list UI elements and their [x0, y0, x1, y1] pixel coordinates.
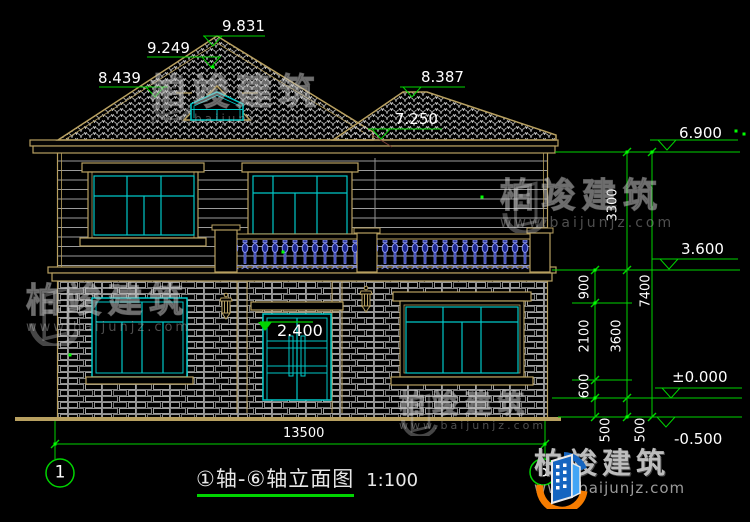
eave-cornice [30, 140, 558, 153]
door-height-label: 2.400 [277, 323, 323, 339]
title-underline [197, 494, 354, 497]
dim-500-b: 500 [635, 418, 648, 443]
ground-line [15, 417, 561, 421]
dim-7400: 7400 [640, 274, 653, 307]
brand-logo: 柏竣建筑 www.baijunjz.com [534, 449, 685, 499]
window-2f-center [242, 163, 358, 234]
window-2f-left [80, 163, 206, 246]
elevation-label-right-ridge: 8.387 [421, 70, 464, 85]
window-1f-right [391, 292, 533, 385]
cad-elevation-screenshot: 9.831 9.249 8.439 8.387 7.250 6.900 3.60… [0, 0, 750, 522]
drawing-title: ①轴-⑥轴立面图 [196, 467, 354, 491]
window-1f-left [86, 298, 193, 384]
dim-3300: 3300 [607, 188, 620, 221]
dim-600: 600 [579, 374, 592, 399]
axis-number-1: 1 [55, 465, 66, 482]
elevation-label-site: -0.500 [674, 432, 722, 447]
drawing-title-row: ①轴-⑥轴立面图1:100 [196, 463, 418, 493]
brand-logo-icon [534, 449, 590, 509]
elevation-label-second-floor: 3.600 [681, 242, 724, 257]
elevation-label-main-eave: 6.900 [679, 126, 722, 141]
entrance-door [251, 302, 343, 400]
dim-500-a: 500 [600, 418, 613, 443]
elevation-label-right-wing-eave: 7.250 [395, 112, 438, 127]
dim-2100: 2100 [579, 319, 592, 352]
elevation-label-ridge: 9.831 [222, 19, 265, 34]
dim-3600: 3600 [611, 319, 624, 352]
elevation-label-ridge-tile: 9.249 [147, 41, 190, 56]
elevation-label-first-floor: ±0.000 [672, 370, 728, 385]
dim-900: 900 [579, 275, 592, 300]
overall-width-dimension: 13500 [283, 427, 324, 440]
right-roof [333, 92, 556, 140]
drawing-scale: 1:100 [366, 470, 418, 491]
elevation-label-left-slope: 8.439 [98, 71, 141, 86]
